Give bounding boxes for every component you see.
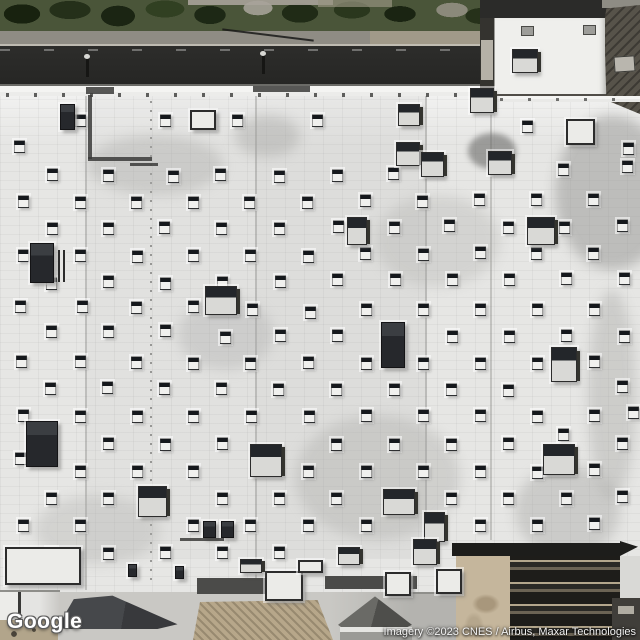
garden-center-trellis [452, 540, 640, 640]
roof-hatch [583, 25, 596, 35]
trellis-beam [452, 543, 620, 556]
trellis-gap [620, 556, 640, 598]
stain [295, 415, 460, 540]
stain [88, 135, 223, 195]
stain [468, 133, 516, 169]
pole [86, 58, 89, 77]
stain [375, 195, 500, 287]
map-canvas[interactable]: Google Imagery ©2023 CNES / Airbus, Maxa… [0, 0, 640, 640]
hvac-unit [613, 55, 635, 72]
roof-edge-drains [6, 93, 488, 97]
stain [178, 298, 273, 370]
walkway [318, 0, 392, 7]
trellis-beam-end [620, 541, 638, 556]
roof-edge-drains [500, 98, 638, 101]
roof-hatch [521, 26, 534, 36]
imagery-attribution: Imagery ©2023 CNES / Airbus, Maxar Techn… [384, 626, 636, 638]
stain [588, 290, 636, 500]
entrance-roof-band [197, 578, 297, 594]
lane-markings [0, 49, 480, 51]
curb-line [0, 44, 494, 46]
entrance-plaza [193, 600, 333, 640]
pole [260, 51, 266, 56]
trailer [481, 40, 493, 80]
google-logo[interactable]: Google [7, 610, 82, 634]
entrance-roof-band [325, 576, 417, 589]
stain [35, 495, 160, 565]
stain [235, 115, 300, 157]
pole [262, 55, 265, 74]
trellis-tray [618, 606, 634, 614]
pole [84, 54, 90, 59]
walkway [188, 0, 333, 5]
